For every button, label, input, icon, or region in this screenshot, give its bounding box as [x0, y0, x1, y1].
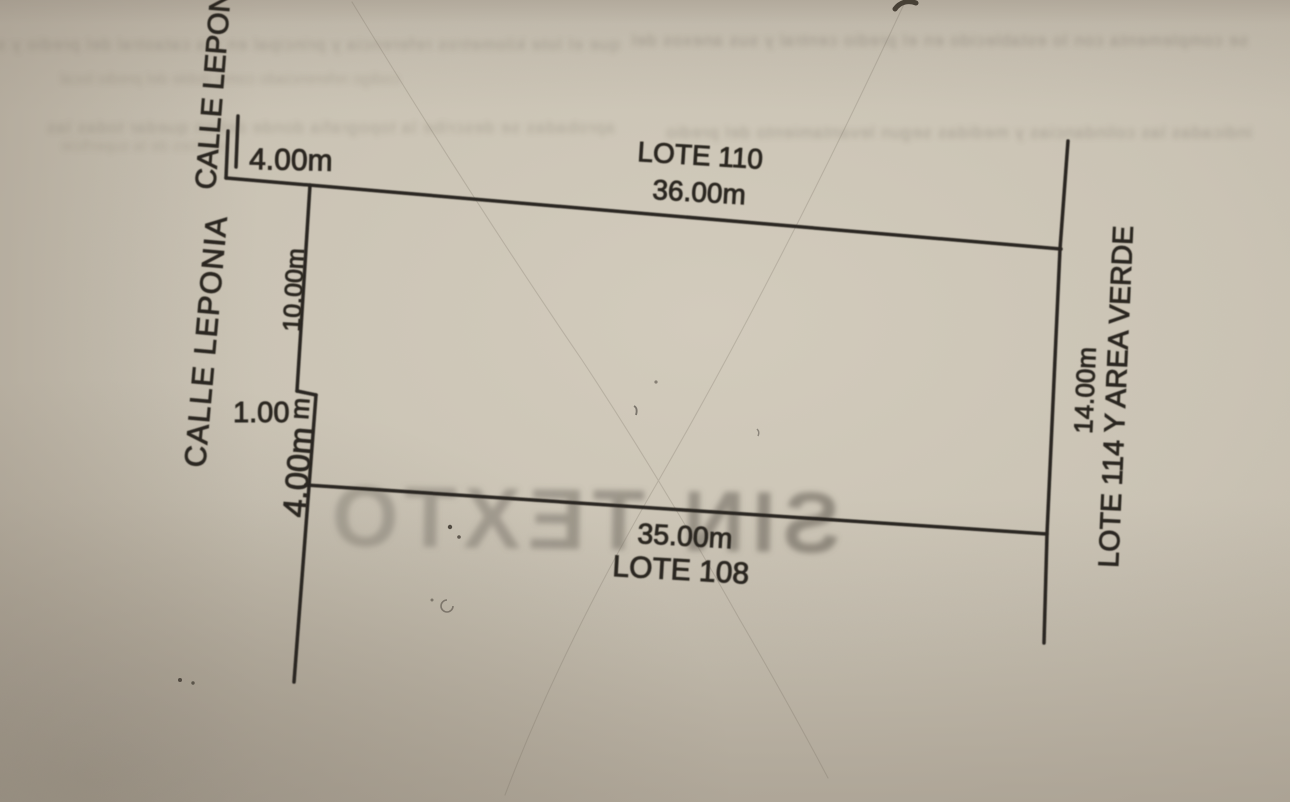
svg-text:10.00m: 10.00m	[278, 248, 310, 333]
svg-text:m: m	[284, 397, 315, 421]
svg-text:que el lote kilometros referen: que el lote kilometros referencia y prin…	[0, 35, 620, 54]
svg-text:1.00: 1.00	[233, 397, 289, 429]
svg-text:14.00m: 14.00m	[1068, 346, 1102, 434]
svg-text:36.00m: 36.00m	[652, 174, 747, 210]
svg-text:se complementa con lo establec: se complementa con lo establecido en el …	[631, 31, 1248, 50]
svg-text:35.00m: 35.00m	[637, 518, 734, 555]
svg-text:SIN TEXTO: SIN TEXTO	[324, 468, 841, 571]
svg-text:indicadas las colindancias y m: indicadas las colindancias y medidas seg…	[665, 123, 1252, 142]
svg-text:4.00m: 4.00m	[249, 143, 333, 178]
svg-text:aprobadas se describe la topog: aprobadas se describe la topografia dond…	[46, 118, 615, 137]
